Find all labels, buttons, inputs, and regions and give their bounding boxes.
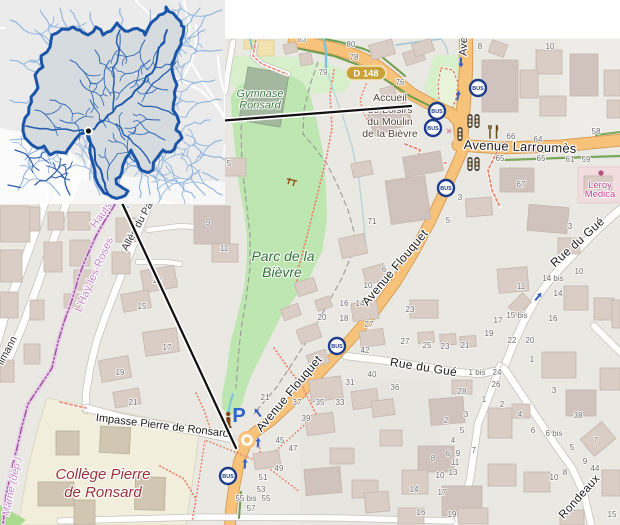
svg-text:15: 15 xyxy=(608,510,617,519)
svg-text:55 bis: 55 bis xyxy=(235,494,256,503)
svg-text:14: 14 xyxy=(410,485,419,494)
svg-text:64: 64 xyxy=(534,135,543,144)
svg-text:26: 26 xyxy=(492,380,501,389)
svg-text:Accueil: Accueil xyxy=(373,92,407,104)
svg-text:27: 27 xyxy=(365,320,374,329)
svg-text:20: 20 xyxy=(318,313,327,322)
svg-text:49: 49 xyxy=(275,464,284,473)
svg-text:25: 25 xyxy=(423,341,432,350)
svg-text:61: 61 xyxy=(566,155,575,164)
svg-text:BUS: BUS xyxy=(440,186,452,192)
svg-text:59: 59 xyxy=(582,155,591,164)
svg-text:6: 6 xyxy=(382,265,387,274)
svg-text:2: 2 xyxy=(444,416,449,425)
svg-text:D 148: D 148 xyxy=(353,69,378,80)
svg-text:9: 9 xyxy=(456,449,461,458)
svg-text:15 bis: 15 bis xyxy=(506,311,527,320)
svg-text:58: 58 xyxy=(592,127,601,136)
svg-text:11: 11 xyxy=(451,458,460,467)
svg-text:2: 2 xyxy=(500,400,505,409)
svg-text:51: 51 xyxy=(259,473,268,482)
svg-text:11: 11 xyxy=(220,244,229,253)
svg-text:1: 1 xyxy=(482,395,487,404)
svg-text:5: 5 xyxy=(227,159,232,168)
svg-text:5: 5 xyxy=(570,443,575,452)
svg-text:17: 17 xyxy=(494,316,503,325)
svg-text:65: 65 xyxy=(496,154,505,163)
svg-text:10: 10 xyxy=(436,471,445,480)
svg-text:16: 16 xyxy=(417,508,426,517)
svg-text:42: 42 xyxy=(361,346,370,355)
svg-text:66: 66 xyxy=(507,132,516,141)
svg-text:71: 71 xyxy=(368,217,377,226)
svg-text:5: 5 xyxy=(446,216,451,225)
svg-text:6: 6 xyxy=(446,449,451,458)
svg-text:22: 22 xyxy=(508,336,517,345)
svg-text:38: 38 xyxy=(574,411,583,420)
svg-text:18: 18 xyxy=(340,314,349,323)
svg-text:35: 35 xyxy=(316,398,325,407)
svg-text:24: 24 xyxy=(493,368,502,377)
svg-text:de la Bièvre: de la Bièvre xyxy=(362,128,418,140)
svg-text:5: 5 xyxy=(460,426,465,435)
svg-text:Parc de la: Parc de la xyxy=(251,248,314,264)
svg-text:57: 57 xyxy=(247,504,256,513)
svg-text:8: 8 xyxy=(478,42,483,51)
svg-text:40: 40 xyxy=(368,370,377,379)
svg-text:36: 36 xyxy=(391,383,400,392)
svg-text:16: 16 xyxy=(340,299,349,308)
svg-text:21: 21 xyxy=(129,398,138,407)
svg-text:10: 10 xyxy=(546,42,555,51)
svg-text:1 bis: 1 bis xyxy=(469,368,486,377)
svg-text:28: 28 xyxy=(458,387,467,396)
svg-text:3: 3 xyxy=(568,222,573,231)
svg-text:BUS: BUS xyxy=(427,126,439,132)
svg-text:9: 9 xyxy=(583,457,588,466)
svg-text:21: 21 xyxy=(461,341,470,350)
svg-text:10: 10 xyxy=(550,473,559,482)
svg-text:6 bis: 6 bis xyxy=(546,429,563,438)
svg-text:37: 37 xyxy=(293,398,302,407)
svg-text:BUS: BUS xyxy=(431,109,443,115)
svg-text:14 bis: 14 bis xyxy=(542,274,563,283)
svg-text:15: 15 xyxy=(138,302,147,311)
svg-text:7: 7 xyxy=(594,436,599,445)
svg-text:65: 65 xyxy=(537,154,546,163)
svg-text:78: 78 xyxy=(350,53,359,62)
svg-text:47: 47 xyxy=(289,444,298,453)
svg-text:8: 8 xyxy=(563,468,568,477)
svg-text:3: 3 xyxy=(458,193,463,202)
svg-text:11: 11 xyxy=(517,282,526,291)
svg-text:20: 20 xyxy=(526,336,535,345)
svg-text:16: 16 xyxy=(549,314,558,323)
svg-text:4: 4 xyxy=(451,436,456,445)
svg-text:P: P xyxy=(232,405,245,427)
svg-text:9: 9 xyxy=(206,218,211,227)
svg-text:3: 3 xyxy=(464,410,469,419)
svg-text:80: 80 xyxy=(347,40,356,49)
svg-text:du Moulin: du Moulin xyxy=(367,116,413,128)
svg-text:6: 6 xyxy=(531,426,536,435)
svg-text:19: 19 xyxy=(116,368,125,377)
svg-text:4: 4 xyxy=(518,410,523,419)
svg-text:45: 45 xyxy=(276,436,285,445)
svg-text:53: 53 xyxy=(257,485,266,494)
svg-text:Collège Pierre: Collège Pierre xyxy=(55,466,150,483)
svg-text:BUS: BUS xyxy=(331,344,343,350)
svg-text:21: 21 xyxy=(261,393,270,402)
svg-text:23: 23 xyxy=(441,342,450,351)
svg-text:de Ronsard: de Ronsard xyxy=(64,484,142,501)
svg-text:8: 8 xyxy=(431,454,436,463)
svg-text:1: 1 xyxy=(530,355,535,364)
svg-text:44: 44 xyxy=(591,464,600,473)
svg-text:10: 10 xyxy=(575,267,584,276)
svg-text:7: 7 xyxy=(472,446,477,455)
svg-text:14: 14 xyxy=(356,299,365,308)
svg-text:BUS: BUS xyxy=(222,474,234,480)
svg-text:14: 14 xyxy=(554,289,563,298)
svg-text:Gymnase: Gymnase xyxy=(236,88,283,100)
svg-text:3: 3 xyxy=(552,386,557,395)
svg-text:19: 19 xyxy=(485,329,494,338)
svg-text:55: 55 xyxy=(262,494,271,503)
svg-text:Bièvre: Bièvre xyxy=(262,264,302,280)
svg-text:67: 67 xyxy=(517,180,526,189)
svg-text:BUS: BUS xyxy=(472,86,484,92)
svg-text:79: 79 xyxy=(319,68,328,77)
svg-text:39: 39 xyxy=(302,414,311,423)
svg-text:10: 10 xyxy=(364,281,373,290)
svg-text:33: 33 xyxy=(336,398,345,407)
svg-text:27: 27 xyxy=(401,337,410,346)
svg-text:19: 19 xyxy=(448,510,457,519)
svg-text:Médica: Médica xyxy=(585,189,616,200)
svg-text:31: 31 xyxy=(346,378,355,387)
svg-text:17: 17 xyxy=(163,343,172,352)
svg-text:76: 76 xyxy=(396,78,405,87)
svg-text:Ronsard: Ronsard xyxy=(239,100,281,112)
svg-text:13: 13 xyxy=(449,468,458,477)
svg-text:17: 17 xyxy=(438,488,447,497)
svg-text:23: 23 xyxy=(406,305,415,314)
